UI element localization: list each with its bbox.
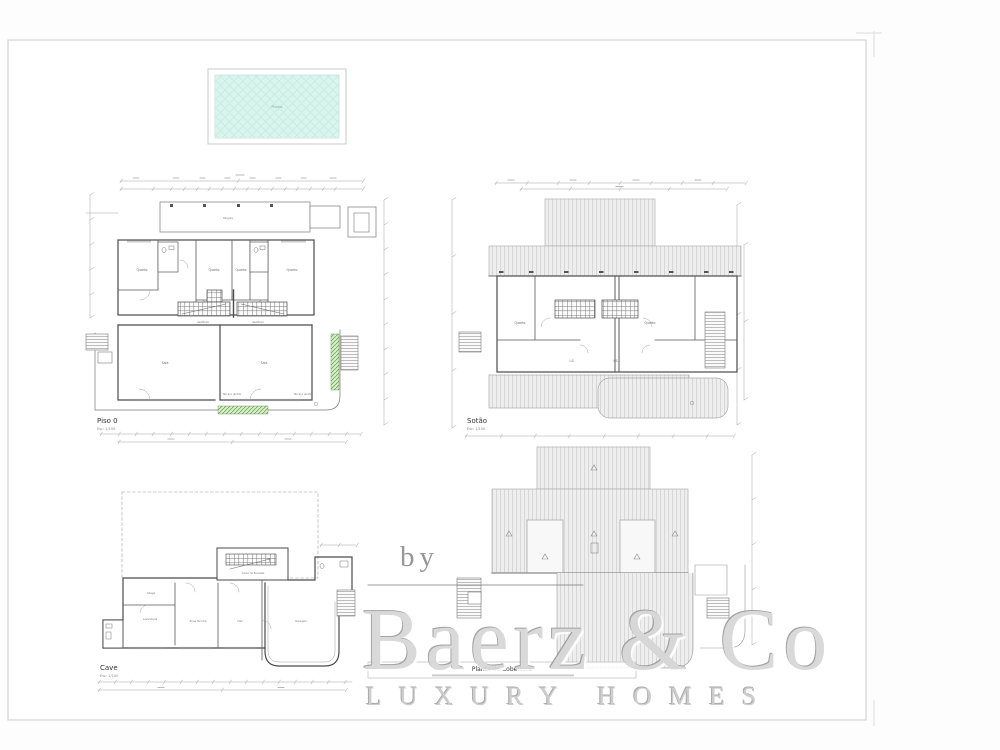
watermark-tagline: LUXURY HOMES [366,682,773,712]
sotao-title: Sotão [467,417,487,425]
exterior-stair-left [86,334,108,350]
pool-plan: Piscina [208,69,346,144]
sotao-floor-body: Quarto Quarto I.S. I.S. [497,276,737,372]
room-label: Quarto [287,268,298,272]
exterior-stair-right [705,312,725,368]
roof-skylight-left [527,520,563,573]
room-label: Sala [261,361,268,365]
room-label: I.S. [570,359,575,363]
room-label: Lavandaria [143,617,158,621]
room-label: Quarto [645,321,656,325]
room-label: Vestíbulo [197,320,209,324]
room-label: Quarto [515,321,526,325]
watermark-by: by [400,541,439,574]
room-label: Adega [147,591,156,595]
sotao-roof-band [489,246,741,276]
watermark-brand: Baerz & Co [362,590,832,691]
piso0-title: Piso 0 [97,417,118,425]
sotao-scale: Esc: 1/100 [467,427,485,431]
room-label: Sala [162,361,169,365]
sotao-roof-upper [545,199,655,246]
room-label: Garagem [295,619,307,623]
room-label: Zona Técnica [190,619,207,623]
drawing-page: Piscina Pérgola [0,0,1000,750]
room-label: Caixa de Escadas [242,571,265,575]
sotao-stairwell-right [602,300,638,318]
room-label: Vestíbulo [252,320,264,324]
room-label: Hall [238,619,243,623]
cave-stair-housing: Caixa de Escadas [217,548,288,580]
exterior-stair-right [341,336,358,370]
gate-detail-inner [354,213,369,232]
cave-title: Cave [100,664,118,672]
cave-scale: Esc: 1/100 [100,674,118,678]
roof-upper-block [537,447,650,489]
piso0-scale: Esc: 1/100 [97,427,115,431]
room-label: I.S. [614,359,619,363]
pool-label: Piscina [271,105,282,109]
roof-skylight-right [620,520,655,573]
room-label: Quarto [209,268,220,272]
terrace-label: Terraço jardim [294,392,313,396]
exterior-stair-cave [337,590,355,616]
planter-horizontal [218,406,268,414]
exterior-step-left [459,332,481,352]
planter-vertical [331,334,339,390]
sotao-stairwell-left [555,300,595,318]
pergola-label: Pérgola [223,216,233,220]
room-label: Quarto [236,268,247,272]
roof-main-block [492,489,688,573]
terrace-label: Terraço jardim [223,392,242,396]
room-label: Quarto [137,268,148,272]
